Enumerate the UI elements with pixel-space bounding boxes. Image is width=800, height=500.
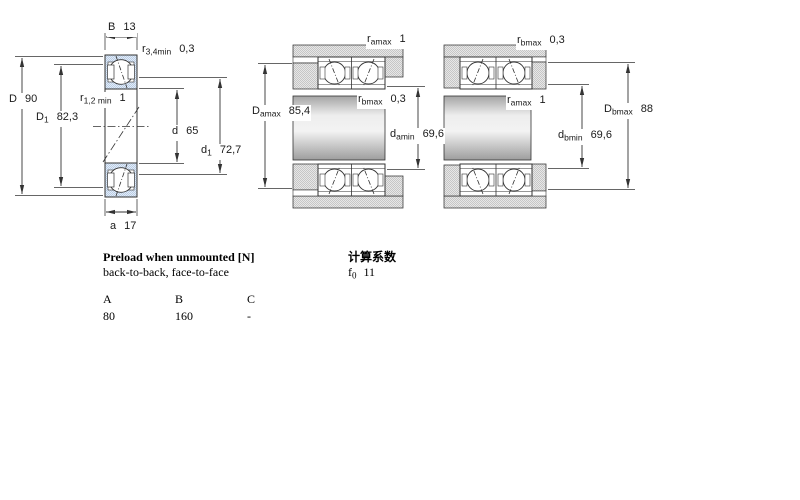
dim-label-a: a17 xyxy=(109,220,137,236)
dim-label-r34min: r3,4min0,3 xyxy=(141,43,195,59)
preload-subtitle: back-to-back, face-to-face xyxy=(103,265,229,279)
dim-Damax xyxy=(258,64,292,189)
preload-table-header: A B C xyxy=(103,292,319,307)
dim-a xyxy=(105,199,137,216)
housing-wall-left-bottom xyxy=(444,165,460,196)
dim-label-damin: damin69,6 xyxy=(389,128,445,144)
housing-wall-left-top xyxy=(444,57,460,88)
dim-label-dbmin: dbmin69,6 xyxy=(557,129,613,145)
preload-col-A: A xyxy=(103,292,175,307)
dim-label-rbmax-right: rbmax0,3 xyxy=(516,34,566,50)
bearing-pair-bottom xyxy=(318,164,385,196)
right-mounting-figure xyxy=(444,45,635,208)
housing-bottom xyxy=(293,196,403,208)
preload-title: Preload when unmounted [N] xyxy=(103,250,254,264)
calculation-factor-f0: f011 xyxy=(348,265,375,283)
bearing-datasheet-diagram: B13 r3,4min0,3 D90 D182,3 r1,2 min1 d65 … xyxy=(0,0,800,500)
dim-Dbmax xyxy=(548,63,635,190)
dim-label-D: D90 xyxy=(8,93,38,109)
dim-dbmin xyxy=(548,85,589,169)
preload-col-C: C xyxy=(247,292,319,307)
preload-value-B: 160 xyxy=(175,309,247,324)
housing-bottom xyxy=(444,196,546,208)
dim-label-Damax: Damax85,4 xyxy=(251,105,311,121)
middle-mounting-figure xyxy=(258,45,425,208)
dim-label-Dbmax: Dbmax88 xyxy=(603,103,654,119)
housing-shoulder-left-top xyxy=(293,63,318,89)
dim-label-ramax-mid: ramax1 xyxy=(366,33,407,49)
dim-label-d1: d172,7 xyxy=(200,144,242,160)
preload-value-C: - xyxy=(247,309,319,324)
dim-label-ramax-right: ramax1 xyxy=(506,94,547,110)
dim-label-D1: D182,3 xyxy=(35,111,79,127)
dim-label-B: B13 xyxy=(107,21,137,37)
housing-wall-right-bottom xyxy=(385,176,403,196)
calculation-factors-title: 计算系数 xyxy=(348,250,396,264)
preload-value-A: 80 xyxy=(103,309,175,324)
preload-table-values: 80 160 - xyxy=(103,309,319,324)
housing-shoulder-right-bottom xyxy=(532,164,546,191)
housing-shoulder-left-bottom xyxy=(293,164,318,190)
preload-col-B: B xyxy=(175,292,247,307)
dim-label-r12min: r1,2 min1 xyxy=(79,92,127,108)
bearing-pair-top xyxy=(318,57,385,89)
bearing-pair-bottom xyxy=(460,164,532,196)
dim-label-rbmax-mid: rbmax0,3 xyxy=(357,93,407,109)
preload-table: A B C 80 160 - xyxy=(103,292,319,324)
dim-label-d: d65 xyxy=(171,125,199,141)
housing-shoulder-right-top xyxy=(532,62,546,89)
housing-wall-right-top xyxy=(385,57,403,77)
bearing-pair-top xyxy=(460,57,532,89)
